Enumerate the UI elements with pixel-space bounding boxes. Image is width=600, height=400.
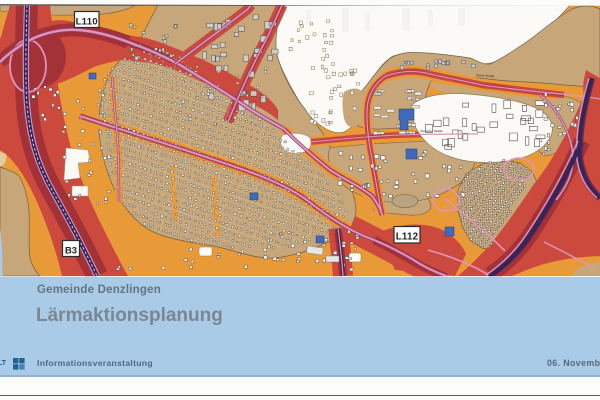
svg-text:Vörstetter Straße: Vörstetter Straße — [420, 129, 443, 133]
svg-text:L112: L112 — [396, 232, 419, 243]
svg-text:L110: L110 — [76, 17, 98, 28]
svg-text:B3: B3 — [65, 245, 77, 256]
